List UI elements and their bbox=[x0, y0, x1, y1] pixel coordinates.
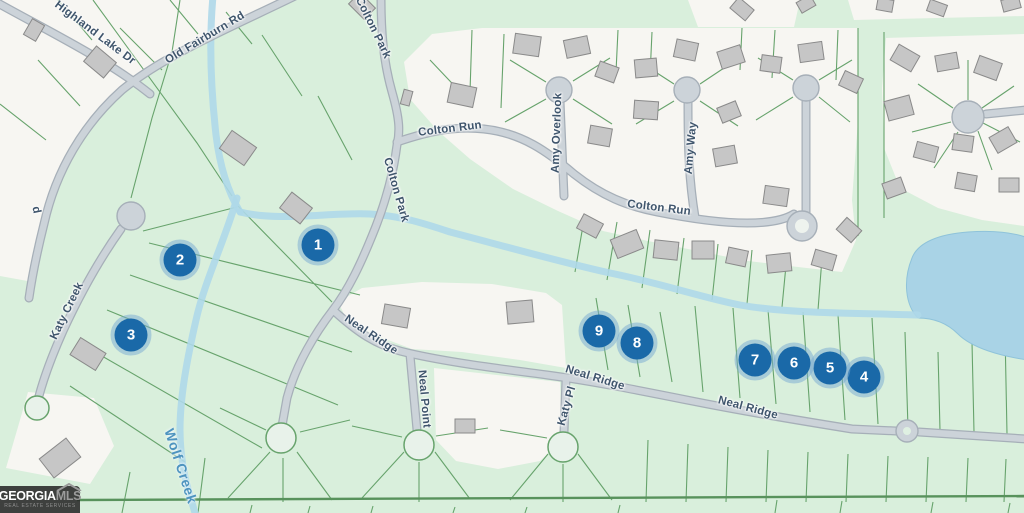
lot-marker-1[interactable]: 1 bbox=[302, 229, 335, 262]
logo-primary-text: GEORGIA bbox=[0, 490, 56, 503]
colton-run-loop-island bbox=[795, 219, 809, 233]
lot-marker-3[interactable]: 3 bbox=[115, 319, 148, 352]
parcels-neal-ridge-north bbox=[338, 282, 566, 368]
lot-marker-7[interactable]: 7 bbox=[739, 344, 772, 377]
cul-de-sac-katy-creek-top bbox=[117, 202, 145, 230]
cul-de-sac-colton-park-end bbox=[266, 423, 296, 453]
pond bbox=[906, 231, 1024, 360]
logo-secondary-text: MLS bbox=[56, 490, 82, 503]
lot-marker-8[interactable]: 8 bbox=[621, 327, 654, 360]
map-base-layer bbox=[0, 0, 1024, 513]
lot-marker-5[interactable]: 5 bbox=[814, 352, 847, 385]
lot-marker-9[interactable]: 9 bbox=[583, 315, 616, 348]
lot-marker-6[interactable]: 6 bbox=[778, 347, 811, 380]
map-canvas[interactable]: Highland Lake DrOld Fairburn RddColton P… bbox=[0, 0, 1024, 513]
georgia-mls-logo: GEORGIA MLS REAL ESTATE SERVICES bbox=[0, 486, 80, 513]
lot-marker-4[interactable]: 4 bbox=[848, 361, 881, 394]
cul-de-sac-amy-way bbox=[674, 77, 700, 103]
roof-icon bbox=[56, 483, 82, 491]
cul-de-sac-neal-point bbox=[404, 430, 434, 460]
neal-ridge-island-center bbox=[903, 427, 911, 435]
cul-de-sac-katy-pl bbox=[548, 432, 578, 462]
logo-tagline: REAL ESTATE SERVICES bbox=[4, 504, 76, 509]
cul-de-sac-top-right bbox=[952, 101, 984, 133]
parcels-neal-ridge-south bbox=[434, 368, 562, 469]
cul-de-sac-katy-creek-end bbox=[25, 396, 49, 420]
lot-marker-2[interactable]: 2 bbox=[164, 244, 197, 277]
cul-de-sac-east bbox=[793, 75, 819, 101]
